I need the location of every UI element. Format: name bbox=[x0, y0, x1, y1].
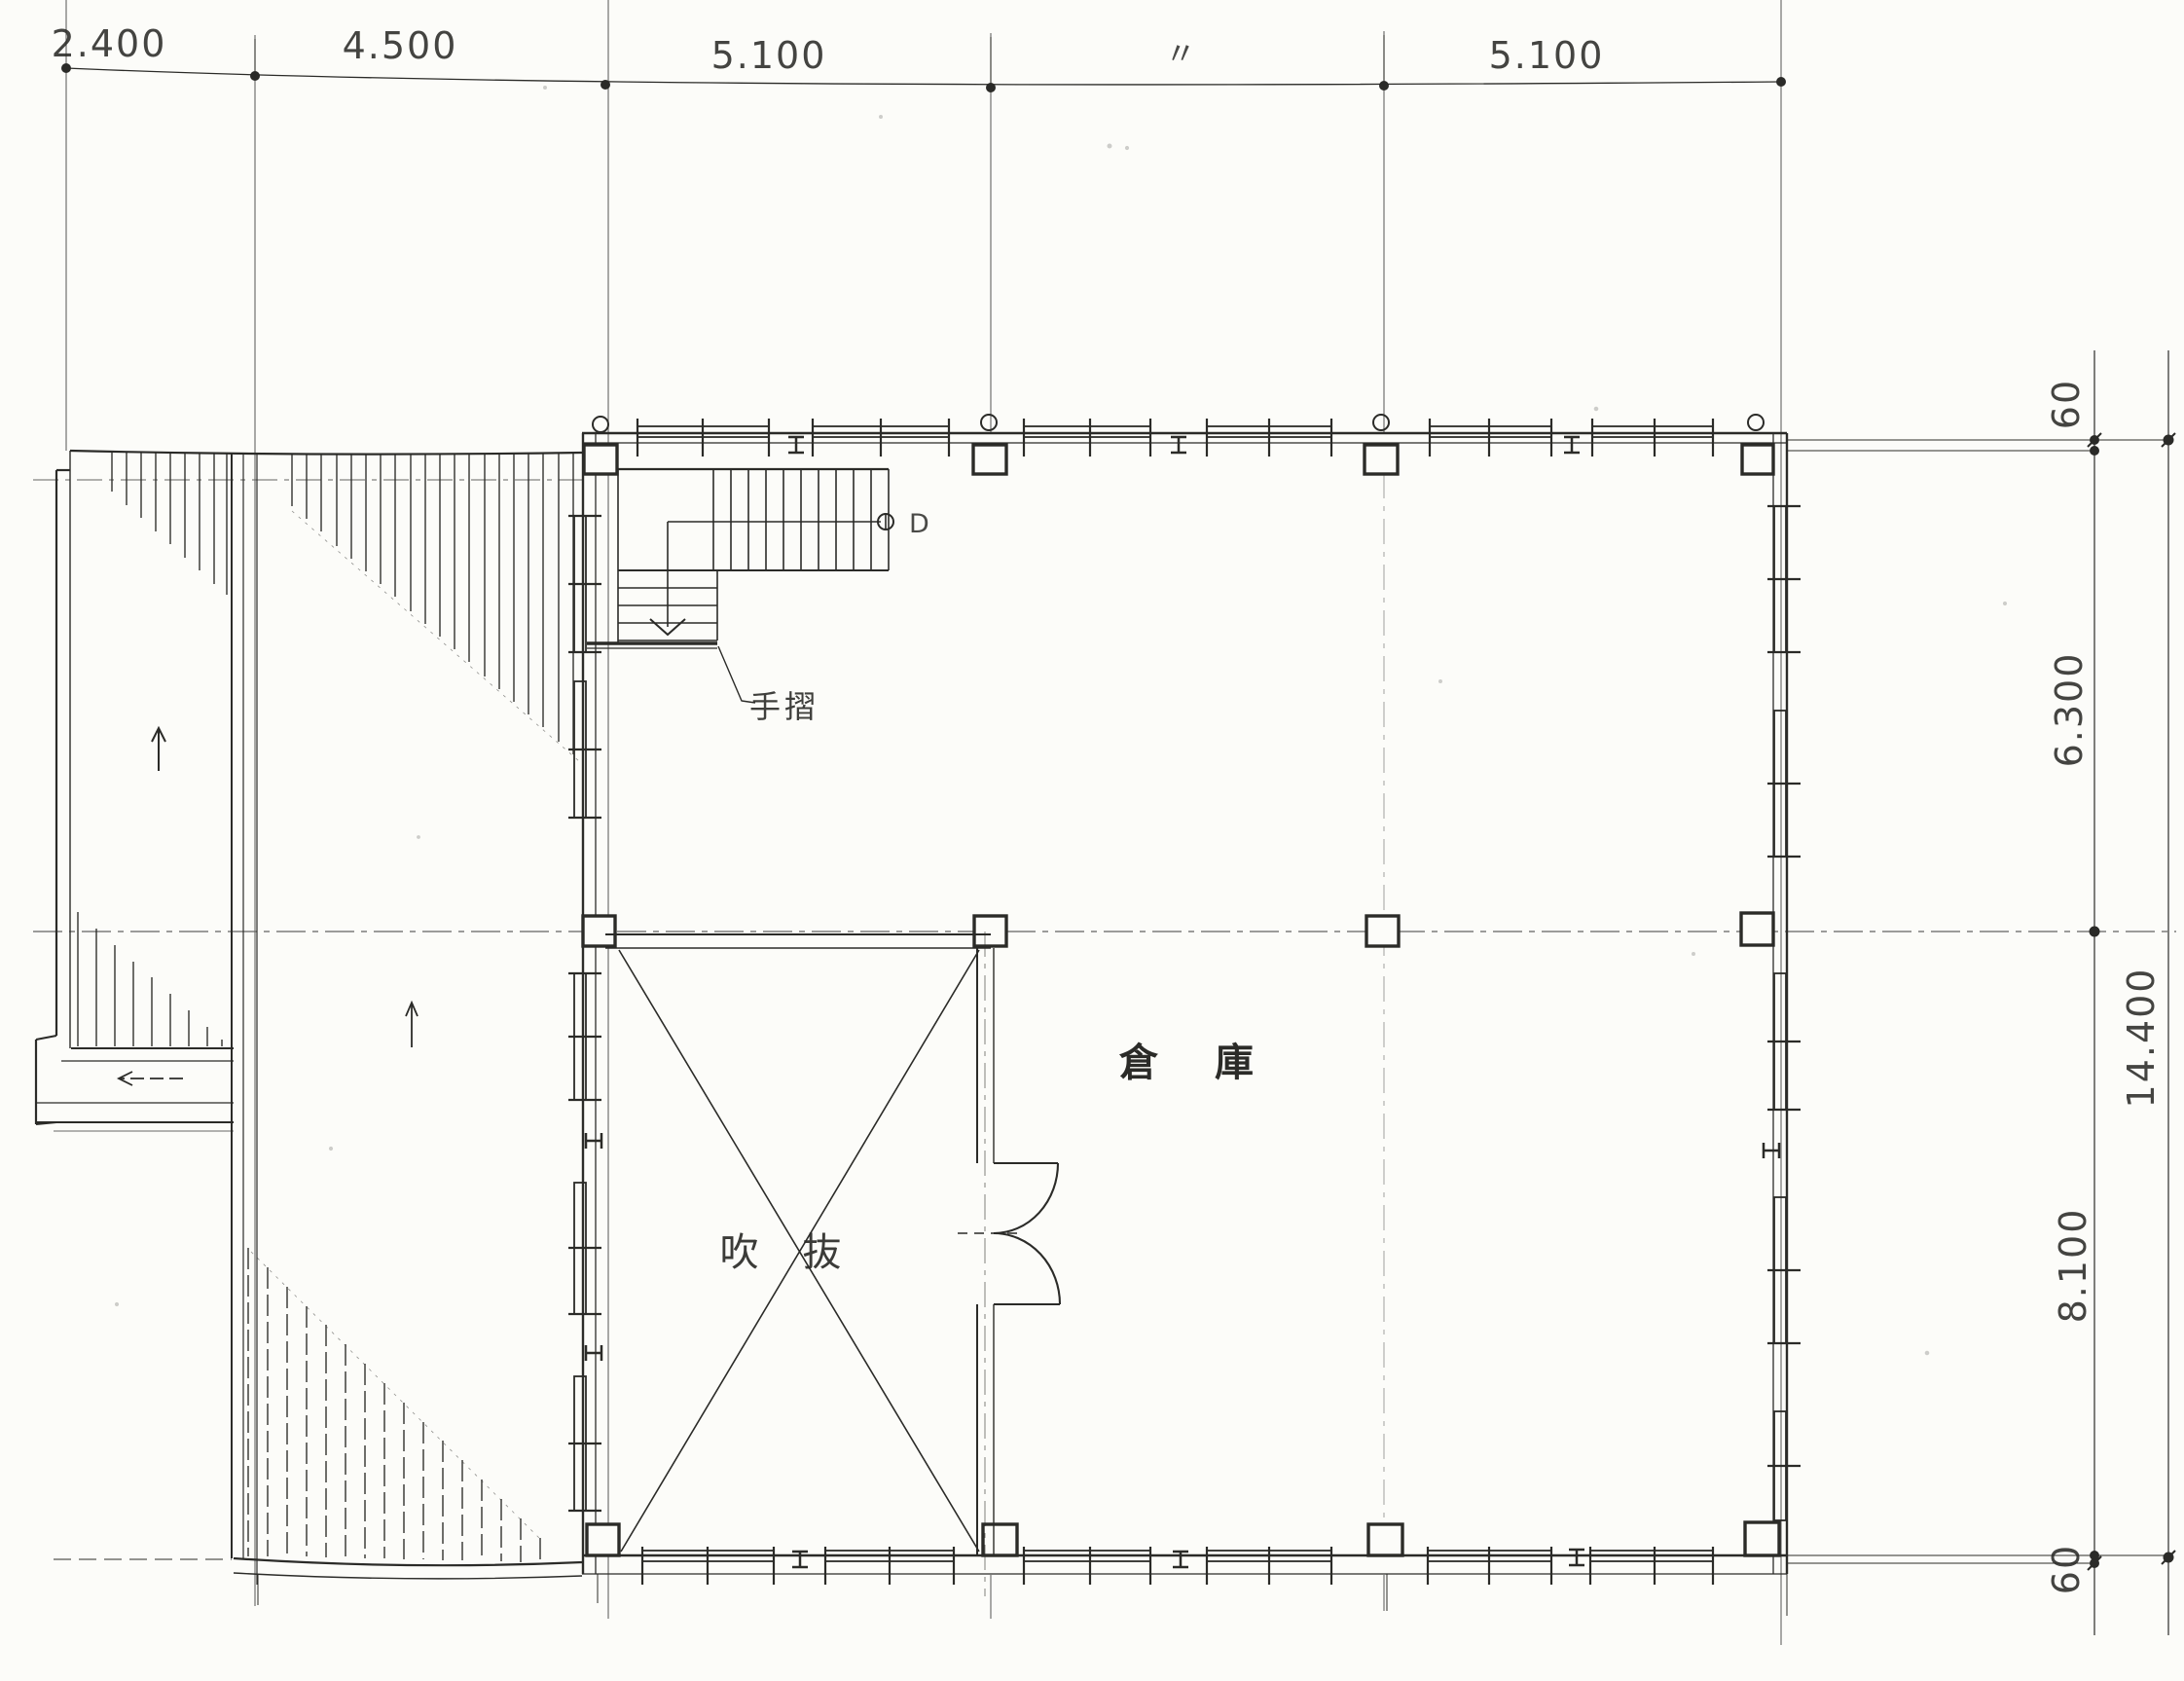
dimension-chain-right: 60 6.300 14.400 8.100 60 bbox=[1787, 350, 2175, 1635]
dim-right-60-top: 60 bbox=[2045, 379, 2088, 429]
roof-hatch-mid-left bbox=[78, 912, 222, 1046]
staircase: D 手摺 bbox=[587, 469, 929, 725]
porch-direction-arrow bbox=[119, 1072, 183, 1085]
wall-right-windows bbox=[1774, 506, 1786, 1520]
dim-top-4500: 4.500 bbox=[343, 24, 458, 67]
wall-right bbox=[1767, 433, 1801, 1574]
annex-porch bbox=[36, 1036, 234, 1131]
stair-newel-label: D bbox=[909, 509, 929, 539]
roof-slope-arrow-right bbox=[406, 1003, 418, 1047]
warehouse-label: 倉 庫 bbox=[1118, 1041, 1275, 1085]
dim-right-60-bot: 60 bbox=[2045, 1544, 2088, 1594]
roof-slope-arrow-left bbox=[152, 728, 165, 771]
atrium-void: 吹 抜 bbox=[605, 932, 1060, 1596]
void-label: 吹 抜 bbox=[720, 1230, 857, 1275]
dim-right-8100: 8.100 bbox=[2052, 1208, 2094, 1324]
wall-bottom-stubs bbox=[598, 1574, 1787, 1616]
floor-plan-sheet: 2.400 4.500 5.100 〃 5.100 60 6.300 14.40… bbox=[0, 0, 2184, 1681]
handrail-label: 手摺 bbox=[749, 688, 819, 725]
dim-top-5100a: 5.100 bbox=[711, 34, 827, 77]
annex-roof bbox=[36, 451, 582, 1605]
roof-hatch-upper-left bbox=[112, 453, 227, 595]
dim-top-5100b: 5.100 bbox=[1489, 34, 1605, 77]
dim-right-6300: 6.300 bbox=[2048, 652, 2091, 768]
steel-beam-marks bbox=[586, 437, 1779, 1567]
scan-speckles bbox=[115, 87, 2006, 1355]
columns bbox=[583, 445, 1779, 1555]
dimension-chain-top: 2.400 4.500 5.100 〃 5.100 bbox=[52, 22, 1786, 92]
grid-lines bbox=[33, 0, 2176, 1645]
dim-top-2400: 2.400 bbox=[52, 22, 167, 65]
main-building-walls bbox=[568, 415, 1801, 1616]
roof-hatch-upper-right bbox=[292, 454, 579, 761]
floor-plan-drawing: 2.400 4.500 5.100 〃 5.100 60 6.300 14.40… bbox=[0, 0, 2184, 1681]
roof-hatch-bottom bbox=[248, 1248, 543, 1562]
stair-walk-line bbox=[650, 514, 893, 635]
wall-right-mullions bbox=[1767, 506, 1801, 1466]
wall-bottom bbox=[582, 1547, 1787, 1616]
double-door bbox=[958, 1163, 1060, 1304]
stair-treads-upper bbox=[713, 469, 871, 570]
dim-top-ditto: 〃 bbox=[1165, 35, 1196, 72]
dim-right-14400: 14.400 bbox=[2120, 968, 2163, 1109]
